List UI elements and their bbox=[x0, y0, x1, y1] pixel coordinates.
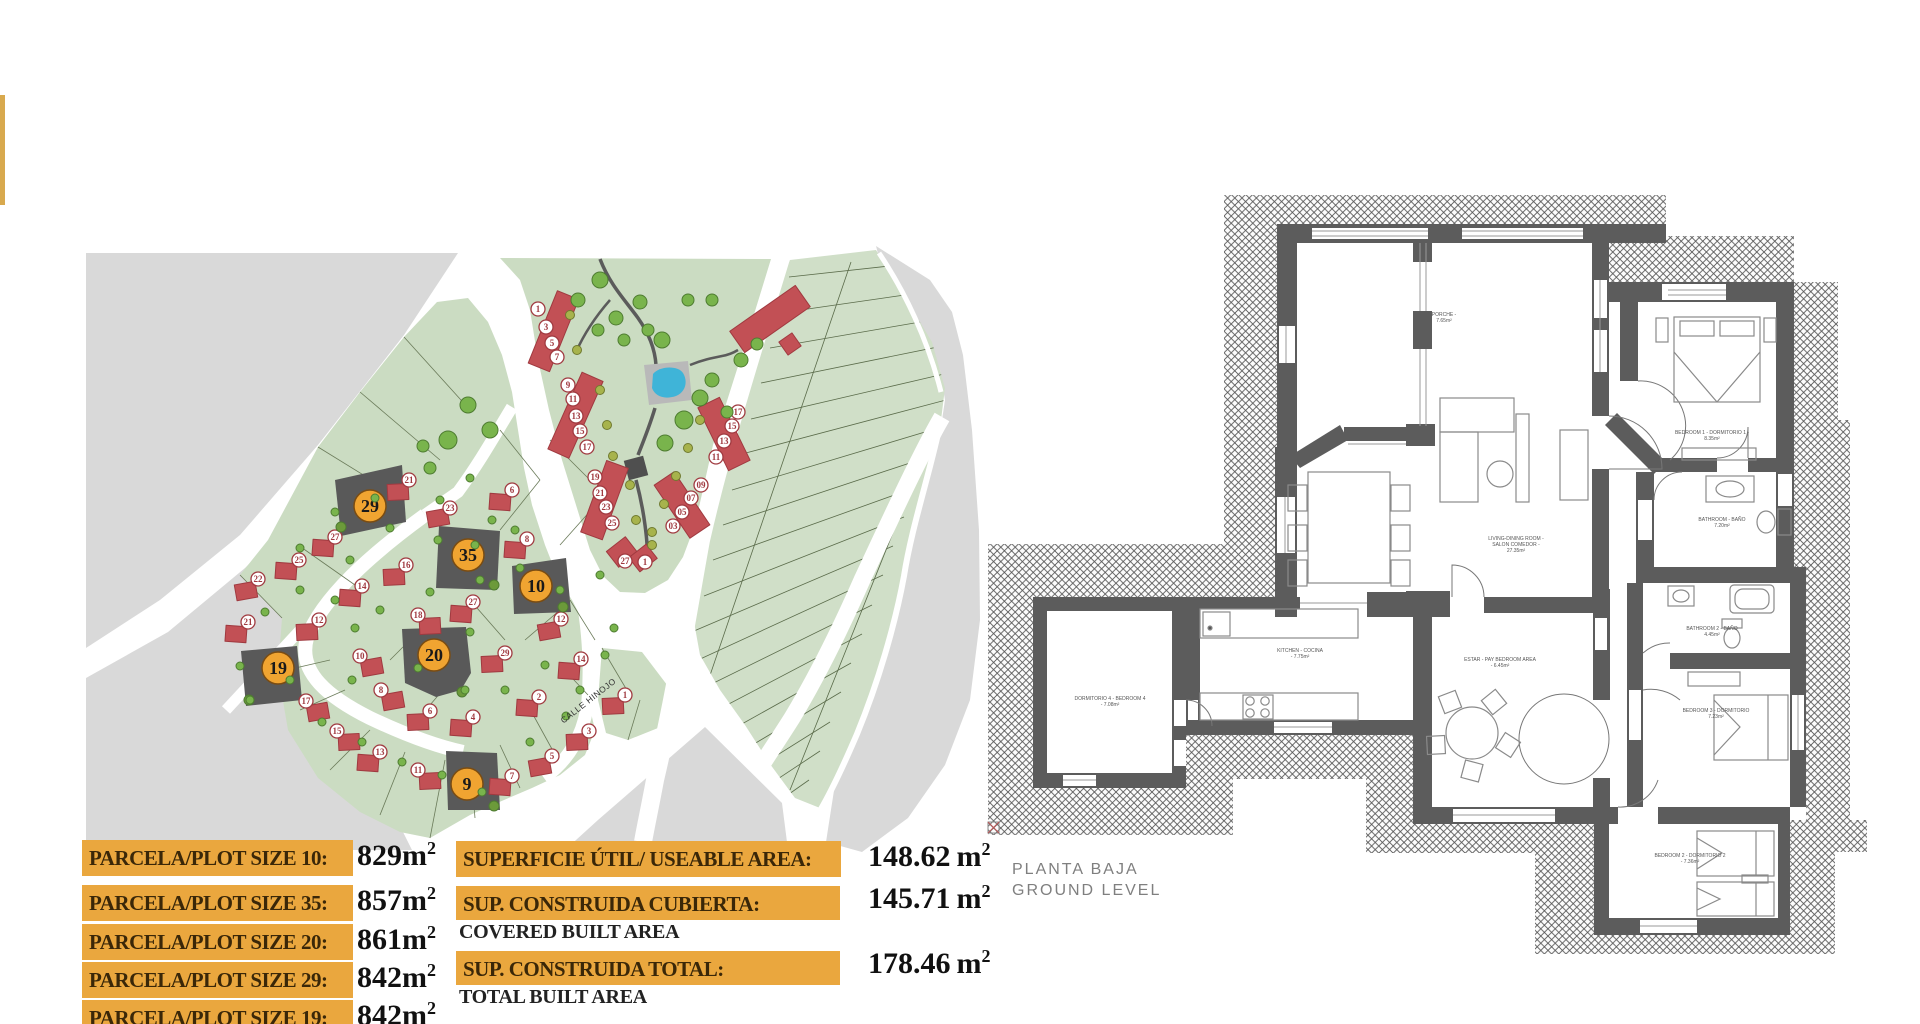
svg-text:4: 4 bbox=[471, 712, 476, 722]
svg-text:21: 21 bbox=[596, 488, 606, 498]
svg-text:10: 10 bbox=[356, 651, 366, 661]
svg-text:09: 09 bbox=[697, 480, 707, 490]
svg-text:6: 6 bbox=[428, 706, 433, 716]
svg-text:20: 20 bbox=[425, 645, 443, 665]
svg-text:23: 23 bbox=[602, 502, 612, 512]
svg-text:25: 25 bbox=[295, 555, 305, 565]
svg-text:15: 15 bbox=[333, 726, 343, 736]
svg-text:9: 9 bbox=[566, 380, 571, 390]
svg-text:21: 21 bbox=[405, 475, 415, 485]
svg-text:19: 19 bbox=[269, 658, 287, 678]
svg-text:10: 10 bbox=[527, 576, 545, 596]
svg-text:7: 7 bbox=[510, 771, 515, 781]
svg-text:- 6.45m²: - 6.45m² bbox=[1491, 663, 1510, 669]
svg-text:1: 1 bbox=[623, 690, 628, 700]
svg-text:27: 27 bbox=[469, 597, 479, 607]
svg-text:BATHROOM 2 - BAÑO: BATHROOM 2 - BAÑO bbox=[1686, 625, 1737, 632]
svg-text:9: 9 bbox=[463, 774, 472, 794]
svg-text:17: 17 bbox=[302, 696, 312, 706]
svg-text:7.20m²: 7.20m² bbox=[1714, 523, 1730, 529]
svg-text:8.35m²: 8.35m² bbox=[1704, 436, 1720, 442]
svg-text:27: 27 bbox=[331, 532, 341, 542]
svg-text:11: 11 bbox=[712, 452, 721, 462]
svg-text:1: 1 bbox=[643, 557, 648, 567]
svg-text:13: 13 bbox=[376, 747, 386, 757]
svg-text:14: 14 bbox=[358, 581, 368, 591]
svg-text:13: 13 bbox=[720, 436, 730, 446]
svg-text:BATHROOM - BAÑO: BATHROOM - BAÑO bbox=[1698, 516, 1745, 523]
svg-text:11: 11 bbox=[414, 765, 423, 775]
svg-text:16: 16 bbox=[402, 560, 412, 570]
svg-text:4.45m²: 4.45m² bbox=[1704, 632, 1720, 638]
svg-text:- 7.75m²: - 7.75m² bbox=[1291, 654, 1310, 660]
svg-text:17: 17 bbox=[583, 442, 593, 452]
svg-text:29: 29 bbox=[501, 648, 511, 658]
svg-text:- 7.08m²: - 7.08m² bbox=[1101, 702, 1120, 708]
svg-text:8: 8 bbox=[525, 534, 530, 544]
svg-text:03: 03 bbox=[669, 521, 679, 531]
svg-text:6: 6 bbox=[510, 485, 515, 495]
svg-text:7: 7 bbox=[555, 352, 560, 362]
svg-text:12: 12 bbox=[315, 615, 325, 625]
svg-text:15: 15 bbox=[728, 421, 738, 431]
svg-text:12: 12 bbox=[557, 614, 567, 624]
svg-text:2: 2 bbox=[537, 692, 542, 702]
svg-text:14: 14 bbox=[577, 654, 587, 664]
svg-text:8: 8 bbox=[379, 685, 384, 695]
svg-text:13: 13 bbox=[572, 411, 582, 421]
svg-text:- 7.36m²: - 7.36m² bbox=[1681, 859, 1700, 865]
svg-text:5: 5 bbox=[550, 338, 555, 348]
svg-text:15: 15 bbox=[576, 426, 586, 436]
svg-text:25: 25 bbox=[608, 518, 618, 528]
svg-text:7.23m²: 7.23m² bbox=[1708, 714, 1724, 720]
svg-text:19: 19 bbox=[591, 472, 601, 482]
svg-text:1: 1 bbox=[536, 304, 541, 314]
svg-text:18: 18 bbox=[414, 610, 424, 620]
svg-text:11: 11 bbox=[569, 394, 578, 404]
svg-text:5: 5 bbox=[550, 751, 555, 761]
svg-text:23: 23 bbox=[446, 503, 456, 513]
svg-text:3: 3 bbox=[544, 322, 549, 332]
svg-text:7.65m²: 7.65m² bbox=[1436, 318, 1452, 324]
svg-text:21: 21 bbox=[244, 617, 254, 627]
svg-text:22: 22 bbox=[254, 574, 264, 584]
svg-text:17: 17 bbox=[734, 407, 744, 417]
svg-text:05: 05 bbox=[678, 507, 688, 517]
svg-text:27.35m²: 27.35m² bbox=[1507, 548, 1526, 554]
svg-text:27: 27 bbox=[621, 556, 631, 566]
svg-text:07: 07 bbox=[687, 493, 697, 503]
svg-text:3: 3 bbox=[587, 726, 592, 736]
